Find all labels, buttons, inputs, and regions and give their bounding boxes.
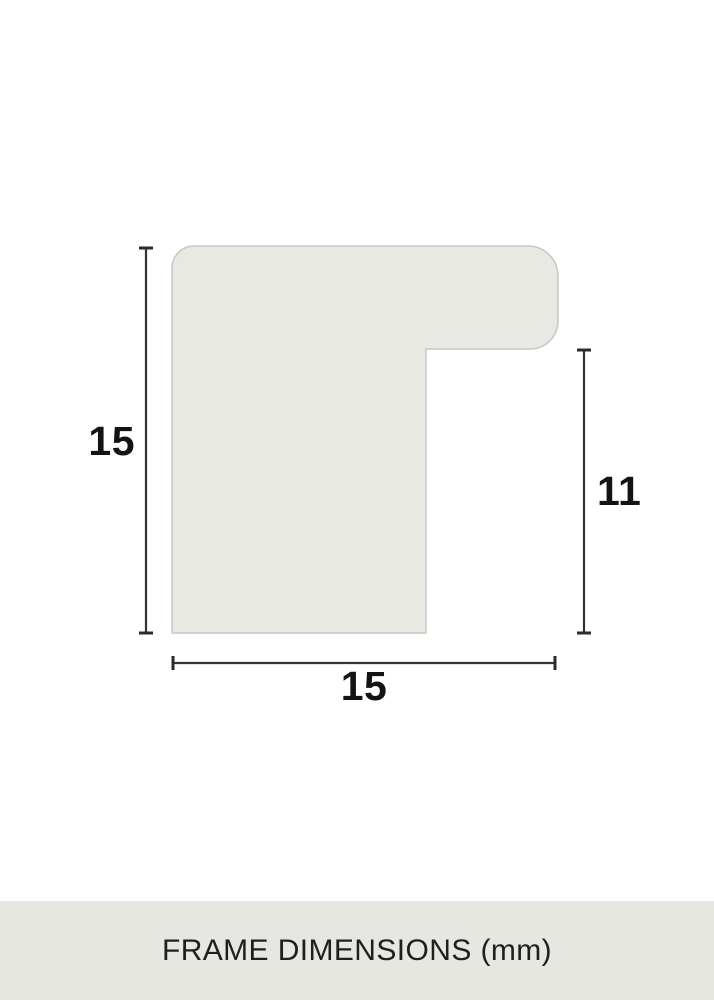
caption-text: FRAME DIMENSIONS (mm) — [162, 934, 552, 968]
rabbet-dimension-label: 11 — [597, 469, 641, 513]
height-dimension-label: 15 — [68, 419, 135, 463]
width-dimension-label: 15 — [314, 664, 414, 708]
product-diagram-page: 15 11 15 FRAME DIMENSIONS (mm) — [0, 0, 714, 1000]
rabbet-dimension-line — [577, 350, 591, 633]
caption-bar: FRAME DIMENSIONS (mm) — [0, 901, 714, 1000]
height-dimension-line — [139, 248, 153, 633]
frame-profile-shape — [172, 246, 558, 633]
